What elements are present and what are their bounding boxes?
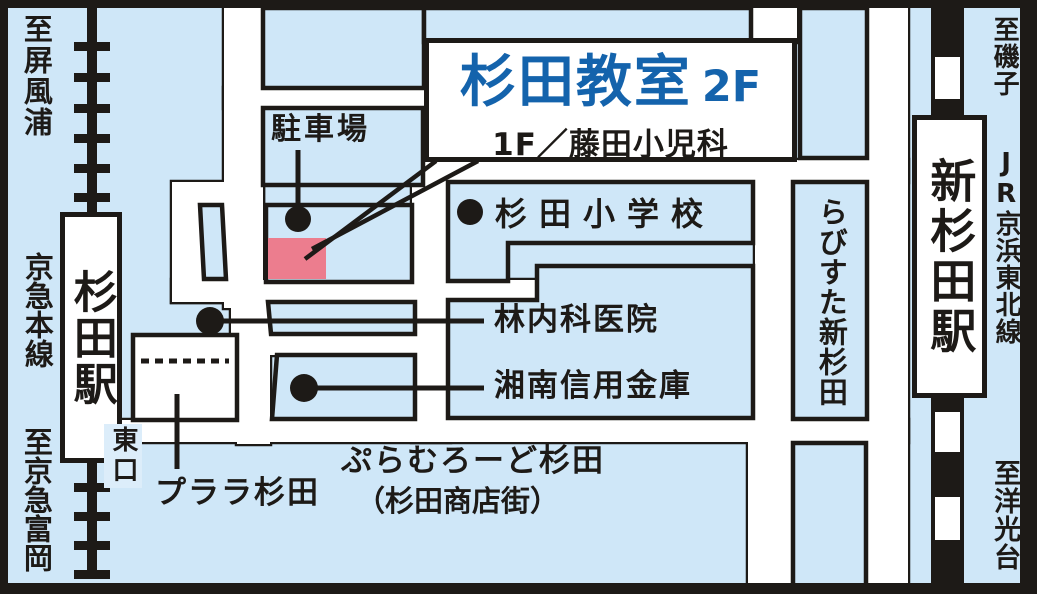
direction-keikyu-tomioka: 至京急富岡	[20, 427, 51, 572]
map: 杉田駅 新杉田駅 杉田教室 2F 1F／藤田小児科 至屏風浦 京急本線 至京急富…	[0, 0, 1037, 594]
purara-building	[133, 335, 237, 420]
station-shin-sugita: 新杉田駅	[912, 115, 987, 398]
rabisuta-label: らびすた新杉田	[815, 197, 846, 407]
classroom-floor: 2F	[702, 62, 761, 112]
keikyu-line-label: 京急本線	[21, 252, 52, 368]
school-dot-icon	[457, 199, 483, 225]
shopping-street-label-line2: （杉田商店街）	[356, 486, 559, 517]
clinic-label: 林内科医院	[494, 304, 659, 337]
direction-yokodai: 至洋光台	[990, 459, 1019, 571]
parking-label: 駐車場	[271, 114, 370, 146]
parking-dot-icon	[285, 206, 311, 232]
bank-dot-icon	[290, 374, 318, 402]
direction-byobugaura: 至屏風浦	[20, 14, 51, 138]
first-floor-tenant: 1F／藤田小児科	[492, 119, 729, 164]
shopping-street-label-line1: ぷらむろーど杉田	[341, 445, 605, 478]
direction-isogo: 至磯子	[990, 16, 1018, 97]
east-exit-label: 東口	[109, 426, 137, 486]
school-label: 杉田小学校	[495, 197, 715, 232]
east-exit-badge: 東口	[104, 424, 142, 488]
station-shin-sugita-label: 新杉田駅	[925, 157, 975, 357]
station-sugita-label: 杉田駅	[67, 269, 115, 407]
classroom-name: 杉田教室	[460, 37, 692, 118]
bank-label: 湘南信用金庫	[494, 370, 692, 403]
clinic-dot-icon	[196, 307, 224, 335]
title-row: 杉田教室 2F	[460, 37, 761, 118]
purara-label: プララ杉田	[155, 477, 320, 510]
title-box: 杉田教室 2F 1F／藤田小児科	[424, 38, 797, 162]
jr-line-label: JR京浜東北線	[992, 148, 1020, 345]
